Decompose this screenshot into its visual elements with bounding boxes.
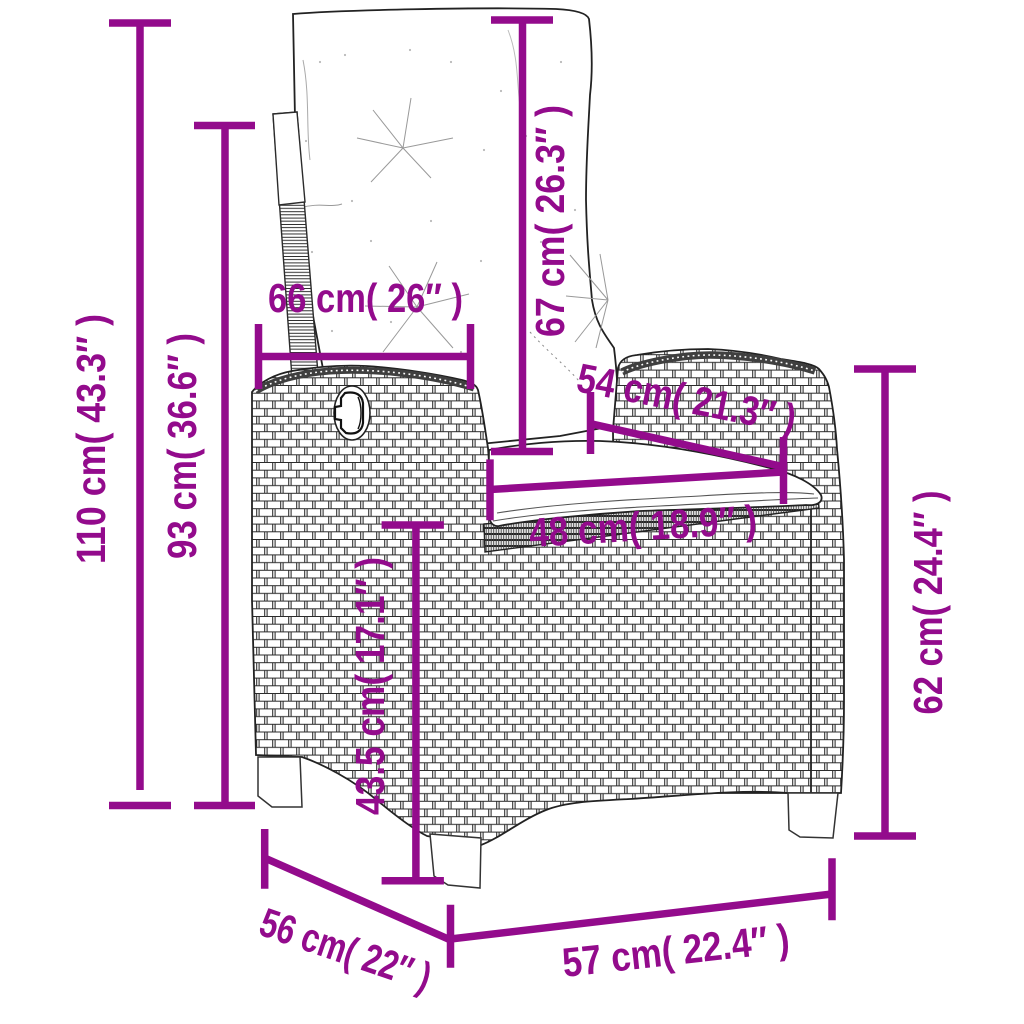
svg-text:43.5 cm( 17.1″ ): 43.5 cm( 17.1″ ) [347,557,393,815]
svg-text:93 cm( 36.6″ ): 93 cm( 36.6″ ) [159,333,205,559]
svg-text:66 cm( 26″ ): 66 cm( 26″ ) [268,275,463,321]
svg-text:62 cm( 24.4″ ): 62 cm( 24.4″ ) [905,491,951,715]
svg-text:67 cm( 26.3″ ): 67 cm( 26.3″ ) [527,105,573,337]
svg-text:110 cm( 43.3″ ): 110 cm( 43.3″ ) [68,314,114,564]
